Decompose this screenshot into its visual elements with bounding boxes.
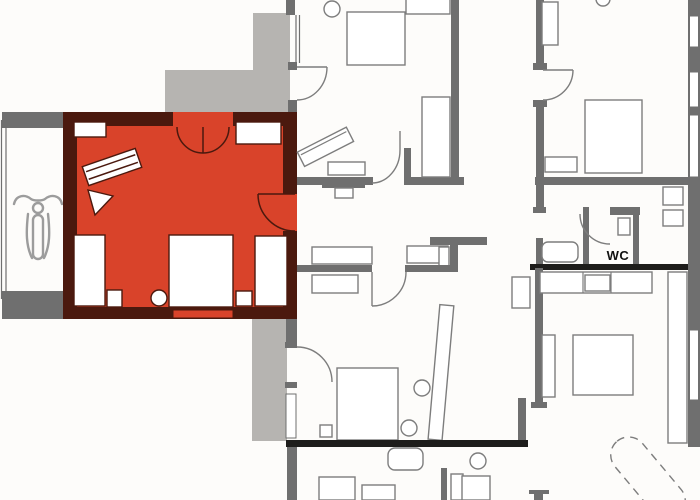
wall-jamb — [533, 63, 547, 70]
bathroom-wc: WC — [530, 187, 700, 270]
bench — [328, 162, 365, 175]
building-right-wall — [688, 0, 700, 447]
floor-plan: WC — [0, 0, 700, 500]
balcony-door — [297, 67, 327, 100]
single-bed — [74, 235, 105, 306]
wall-stub — [404, 148, 411, 179]
wall-bottom-right — [404, 177, 453, 185]
room-door — [372, 131, 400, 183]
wall-jamb — [533, 207, 546, 213]
wc-wall-right — [633, 215, 639, 265]
terrace-mass-bottom — [252, 319, 287, 441]
sink — [585, 275, 610, 291]
shoe-cabinet — [322, 182, 365, 188]
room-top-right — [533, 0, 690, 207]
table — [362, 485, 395, 500]
wall-cap — [531, 402, 547, 408]
room-door — [372, 272, 406, 306]
wall-cap — [529, 490, 549, 494]
sofa — [297, 127, 353, 166]
bathtub — [542, 242, 578, 262]
hall-wall — [430, 237, 487, 245]
window — [690, 330, 699, 400]
wardrobe-tilted — [428, 305, 454, 441]
wall — [288, 100, 297, 112]
cabinet — [462, 476, 490, 500]
bed — [347, 12, 405, 65]
tub — [388, 448, 423, 470]
window — [690, 115, 699, 177]
wc-wall-top — [610, 207, 640, 215]
room-bottom-middle — [285, 265, 528, 447]
wardrobe — [542, 2, 558, 45]
wc-wall-left — [583, 207, 589, 265]
wardrobe — [422, 97, 450, 177]
floor-plan-svg: WC — [0, 0, 700, 500]
wall-stub — [441, 468, 447, 500]
shelf — [312, 275, 358, 293]
black-wall — [530, 264, 700, 270]
window — [690, 16, 699, 47]
stool — [596, 0, 610, 6]
window — [690, 72, 699, 107]
balcony-railing-small — [296, 15, 300, 63]
bicycle-icon — [14, 196, 62, 259]
cabinet — [236, 122, 281, 144]
wall — [288, 62, 297, 70]
cabinet — [439, 247, 449, 267]
nightstand — [545, 157, 577, 172]
sideboard — [312, 247, 372, 264]
appliance — [663, 187, 683, 205]
wall-left — [287, 447, 297, 500]
double-bed — [169, 235, 233, 307]
highlighted-room[interactable] — [63, 112, 297, 319]
terrace-mass-column — [253, 13, 290, 112]
balcony-door-arc — [297, 347, 332, 382]
window — [286, 394, 296, 438]
stool — [324, 1, 340, 17]
wall-bottom — [535, 177, 690, 185]
wall-jamb — [285, 382, 297, 388]
wall-top-right — [405, 265, 453, 272]
sofa-bed — [255, 236, 287, 306]
bed — [337, 368, 398, 440]
door-opening-right — [283, 194, 297, 231]
wall-top-left — [297, 265, 372, 272]
stool — [401, 420, 417, 436]
wc-label: WC — [607, 248, 630, 263]
nightstand — [320, 425, 332, 437]
nightstand — [236, 291, 252, 306]
wall-stub — [534, 494, 543, 500]
hallway — [312, 237, 530, 308]
balcony-left — [2, 112, 64, 319]
wall-right — [451, 0, 459, 183]
room-bottom-right — [529, 268, 693, 500]
balcony-wall-bottom — [2, 291, 63, 319]
room-bottom-edge — [287, 447, 490, 500]
table — [319, 477, 355, 500]
wall — [286, 0, 295, 15]
door-opening-top — [173, 112, 233, 127]
balcony-wall-top — [2, 112, 63, 128]
radiator — [512, 277, 530, 308]
table — [406, 0, 450, 14]
bed — [573, 335, 633, 395]
appliance — [663, 210, 683, 226]
room-top-middle — [286, 0, 464, 198]
stool — [151, 290, 167, 306]
shelf — [74, 122, 106, 137]
wall-right — [518, 398, 526, 441]
kitchen-counter — [540, 272, 652, 293]
hall-stool — [335, 188, 353, 198]
toilet — [618, 218, 630, 235]
cabinet — [451, 474, 463, 500]
terrace-mass-top — [165, 70, 253, 112]
nightstand — [107, 290, 122, 307]
bed — [585, 100, 642, 173]
balcony-railing — [2, 120, 7, 299]
window-bottom — [173, 310, 233, 318]
stool — [470, 453, 486, 469]
black-wall — [286, 440, 528, 447]
wardrobe — [542, 335, 555, 397]
tall-cabinet — [668, 272, 687, 443]
wall-left-lower — [536, 100, 544, 207]
wall-jamb — [285, 342, 297, 348]
room-door — [543, 70, 573, 100]
stool — [414, 380, 430, 396]
